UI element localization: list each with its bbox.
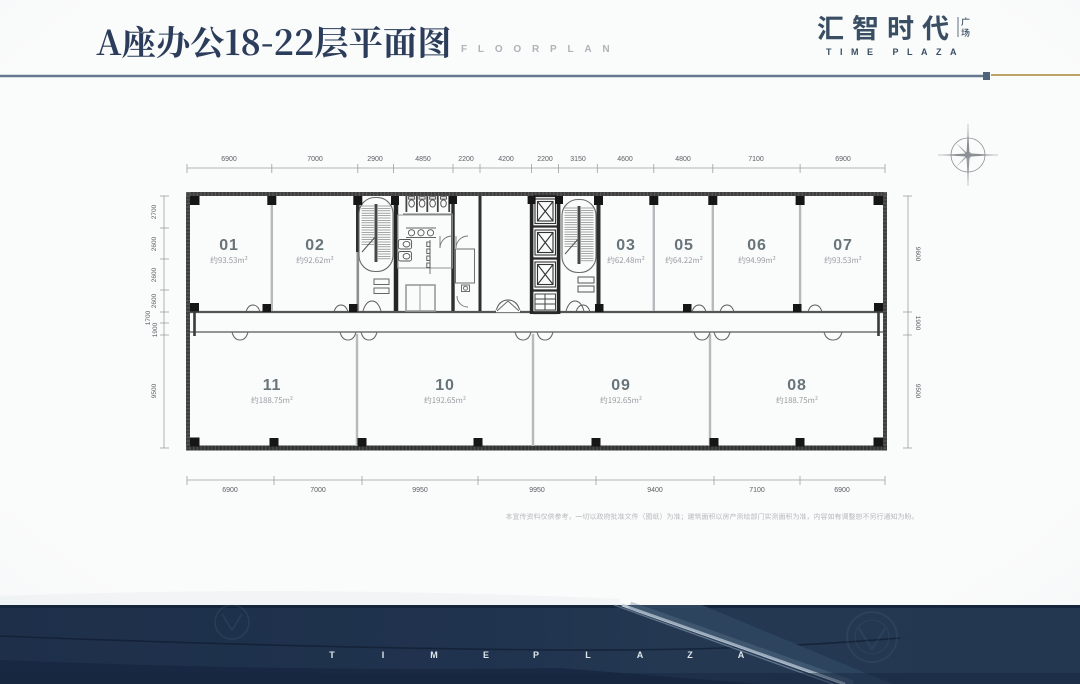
svg-text:4850: 4850 <box>415 156 431 163</box>
svg-text:L: L <box>585 650 591 660</box>
svg-text:1900: 1900 <box>152 322 159 337</box>
svg-text:2600: 2600 <box>151 293 158 308</box>
svg-text:9950: 9950 <box>412 487 428 494</box>
svg-text:TIME PLAZA: TIME PLAZA <box>826 47 965 57</box>
svg-text:7100: 7100 <box>748 156 764 163</box>
svg-text:2600: 2600 <box>151 267 158 282</box>
svg-text:A: A <box>738 650 745 660</box>
svg-text:Z: Z <box>687 650 693 660</box>
svg-text:9950: 9950 <box>529 487 545 494</box>
svg-text:10: 10 <box>435 377 454 394</box>
svg-text:05: 05 <box>674 237 693 254</box>
svg-text:P: P <box>533 650 539 660</box>
svg-text:6900: 6900 <box>221 156 237 163</box>
svg-text:M: M <box>430 650 438 660</box>
svg-text:4800: 4800 <box>675 156 691 163</box>
svg-text:03: 03 <box>616 237 635 254</box>
svg-text:9500: 9500 <box>914 384 921 399</box>
svg-text:FLOORPLAN: FLOORPLAN <box>461 44 620 55</box>
svg-text:A: A <box>637 650 644 660</box>
svg-text:7000: 7000 <box>307 156 323 163</box>
svg-text:9500: 9500 <box>151 383 158 398</box>
svg-text:4600: 4600 <box>617 156 633 163</box>
svg-text:3150: 3150 <box>570 156 586 163</box>
svg-text:6900: 6900 <box>835 156 851 163</box>
svg-text:E: E <box>483 650 489 660</box>
svg-text:1700: 1700 <box>145 310 152 325</box>
svg-text:6900: 6900 <box>834 487 850 494</box>
svg-text:4200: 4200 <box>498 156 514 163</box>
svg-text:T: T <box>329 650 335 660</box>
svg-text:2700: 2700 <box>151 204 158 219</box>
svg-text:09: 09 <box>611 377 630 394</box>
svg-text:7000: 7000 <box>310 487 326 494</box>
svg-text:11: 11 <box>263 377 282 394</box>
svg-text:9600: 9600 <box>914 247 921 262</box>
svg-text:2600: 2600 <box>151 236 158 251</box>
svg-text:01: 01 <box>219 237 238 254</box>
svg-text:9400: 9400 <box>647 487 663 494</box>
svg-text:08: 08 <box>787 377 806 394</box>
svg-text:I: I <box>382 650 385 660</box>
svg-text:2200: 2200 <box>458 156 474 163</box>
svg-text:07: 07 <box>833 237 852 254</box>
svg-text:02: 02 <box>305 237 324 254</box>
svg-text:2900: 2900 <box>367 156 383 163</box>
svg-text:6900: 6900 <box>222 487 238 494</box>
svg-text:1900: 1900 <box>914 316 921 331</box>
svg-text:06: 06 <box>747 237 766 254</box>
svg-text:2200: 2200 <box>537 156 553 163</box>
svg-text:7100: 7100 <box>749 487 765 494</box>
